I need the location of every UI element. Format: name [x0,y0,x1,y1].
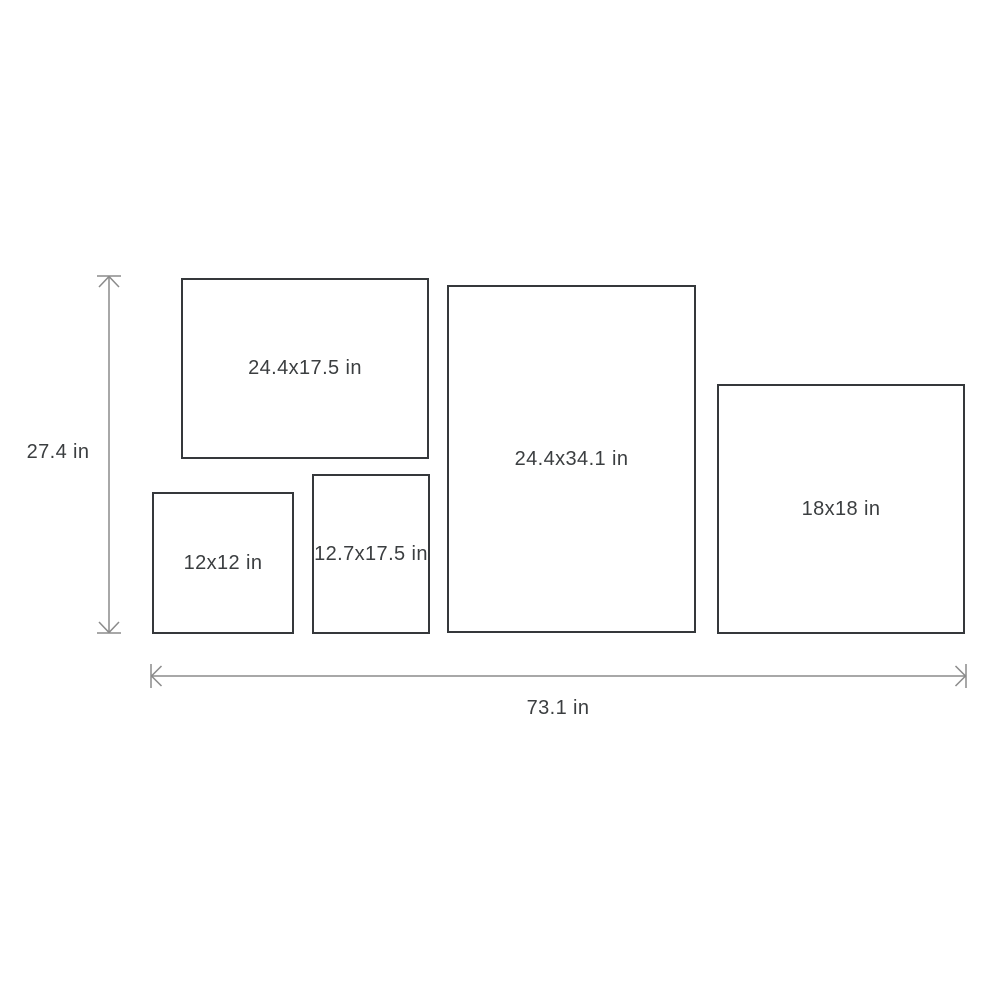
width-dimension-label: 73.1 in [508,697,608,720]
frame-24-4x17-5: 24.4x17.5 in [181,278,429,459]
frame-size-label: 24.4x34.1 in [515,448,629,471]
gallery-wall-size-diagram: 27.4 in 24.4x17.5 in 12x12 in 12.7x17.5 … [0,0,1000,1000]
frame-size-label: 12x12 in [184,552,263,575]
height-dimension-label: 27.4 in [18,441,98,464]
frame-24-4x34-1: 24.4x34.1 in [447,285,696,633]
width-dimension-arrow [143,656,975,696]
frame-12-7x17-5: 12.7x17.5 in [312,474,430,634]
frame-size-label: 12.7x17.5 in [314,543,428,566]
frame-size-label: 24.4x17.5 in [248,357,362,380]
frame-18x18: 18x18 in [717,384,965,634]
frame-size-label: 18x18 in [802,498,881,521]
frame-12x12: 12x12 in [152,492,294,634]
